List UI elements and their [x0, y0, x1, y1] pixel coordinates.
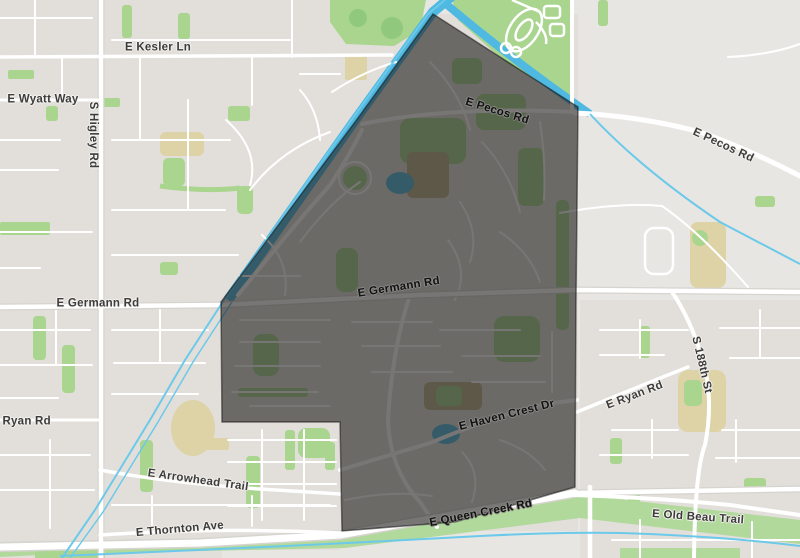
basemap-graphics — [0, 0, 800, 558]
map-canvas[interactable]: E Kesler LnE Wyatt WayS Higley RdE Pecos… — [0, 0, 800, 558]
